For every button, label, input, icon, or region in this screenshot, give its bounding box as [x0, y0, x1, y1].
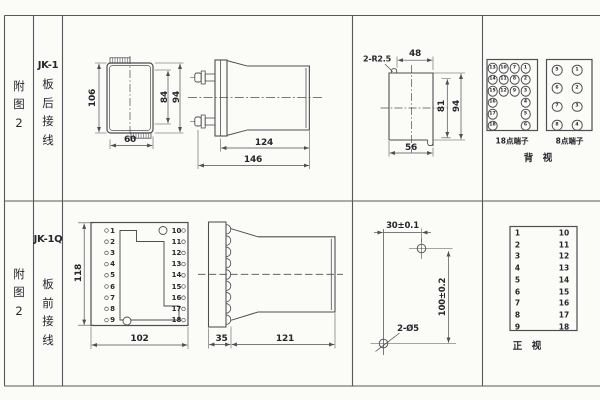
terminal-18pt: 9 — [509, 86, 520, 97]
wiring-char: 板 — [42, 275, 54, 293]
wiring-char: 接 — [42, 112, 54, 130]
terminal-18pt: 10 — [498, 63, 509, 74]
terminal-8pt: 1 — [572, 65, 583, 76]
table-cell-left: 9 — [515, 322, 520, 331]
fig-char: 附 — [13, 77, 25, 95]
wiring-char: 线 — [42, 331, 54, 349]
label-front-view: 正 视 — [513, 338, 542, 352]
terminal-18pt: 14 — [487, 74, 498, 85]
terminal-8pt: 4 — [572, 120, 583, 131]
terminal-18pt: 1 — [520, 63, 531, 74]
fig-char: 图 — [13, 95, 25, 113]
terminal-18pt: 15 — [487, 86, 498, 97]
terminal-18pt: 7 — [509, 63, 520, 74]
table-cell-left: 5 — [515, 275, 520, 284]
wiring-char: 后 — [42, 94, 54, 112]
terminal-18pt: 13 — [487, 63, 498, 74]
front-terminal-left: 1 — [110, 227, 115, 235]
drawing-sheet: 附 图 2 JK-1 板 后 接 线 附 图 2 JK-1Q 板 前 接 线 1… — [0, 0, 600, 400]
front-terminal-left: 3 — [110, 249, 115, 257]
case-side-view — [188, 60, 323, 169]
front-terminal-right: 15 — [172, 283, 182, 291]
table-cell-left: 2 — [515, 240, 520, 249]
front-terminal-right: 14 — [172, 271, 182, 279]
label-18pt-terminal: 18点端子 — [496, 136, 529, 147]
table-cell-left: 8 — [515, 310, 520, 319]
dim-118: 118 — [74, 264, 84, 282]
dim-60: 60 — [124, 135, 136, 145]
model-name: JK-1Q — [34, 231, 63, 249]
dim-106: 106 — [88, 89, 98, 107]
table-cell-left: 3 — [515, 252, 520, 261]
front-terminal-right: 17 — [172, 305, 182, 313]
drawing-linework — [0, 0, 600, 400]
table-cell-right: 13 — [559, 264, 569, 273]
wiring-char: 接 — [42, 312, 54, 330]
table-cell-right: 11 — [559, 240, 569, 249]
terminal-8pt: 6 — [552, 83, 563, 94]
dim-94-cutout: 94 — [452, 100, 462, 112]
wiring-char: 前 — [42, 294, 54, 312]
model-label-top: JK-1 板 后 接 线 — [35, 57, 61, 149]
wiring-char: 板 — [42, 75, 54, 93]
terminal-18pt: 18 — [487, 120, 498, 131]
front-terminal-left: 6 — [110, 283, 115, 291]
terminal-8pt: 2 — [572, 83, 583, 94]
label-8pt-terminal: 8点端子 — [556, 136, 584, 147]
fig-label-top: 附 图 2 — [8, 77, 30, 132]
table-cell-left: 1 — [515, 229, 520, 238]
terminal-18pt: 8 — [509, 74, 520, 85]
terminal-8pt: 5 — [552, 65, 563, 76]
fig-char: 2 — [15, 302, 22, 320]
front-terminal-left: 8 — [110, 305, 115, 313]
dim-56: 56 — [405, 143, 417, 153]
front-terminal-right: 11 — [172, 238, 182, 246]
terminal-18pt: 11 — [498, 74, 509, 85]
table-cell-right: 12 — [559, 252, 569, 261]
front-terminal-right: 16 — [172, 294, 182, 302]
wiring-char: 线 — [42, 131, 54, 149]
front-terminal-right: 12 — [172, 249, 182, 257]
front-terminal-right: 18 — [172, 316, 182, 324]
dim-100: 100±0.2 — [438, 277, 448, 316]
dim-146: 146 — [244, 155, 262, 165]
terminal-18pt: 2 — [520, 74, 531, 85]
terminal-8pt: 3 — [572, 101, 583, 112]
table-cell-right: 14 — [559, 275, 569, 284]
terminal-8pt: 7 — [552, 101, 563, 112]
fig-char: 2 — [15, 114, 22, 132]
case-front-view — [95, 56, 184, 149]
table-cell-right: 10 — [559, 229, 569, 238]
dim-holes-label: 2-Ø5 — [397, 324, 419, 334]
fig-char: 图 — [13, 283, 25, 301]
terminal-18pt: 4 — [520, 97, 531, 108]
dim-81: 81 — [437, 100, 447, 112]
table-cell-left: 7 — [515, 299, 520, 308]
terminal-18pt: 6 — [520, 120, 531, 131]
fig-label-bottom: 附 图 2 — [8, 265, 30, 320]
table-cell-right: 16 — [559, 299, 569, 308]
terminal-18pt: 3 — [520, 86, 531, 97]
front-terminal-left: 5 — [110, 271, 115, 279]
terminal-18pt: 17 — [487, 109, 498, 120]
table-cell-left: 6 — [515, 287, 520, 296]
dim-35: 35 — [215, 334, 227, 344]
dim-84: 84 — [160, 91, 170, 103]
table-cell-left: 4 — [515, 264, 520, 273]
front-terminal-right: 10 — [172, 227, 182, 235]
board-side-view — [198, 222, 343, 349]
dim-124: 124 — [255, 138, 273, 148]
dim-30: 30±0.1 — [386, 221, 419, 231]
dim-94-case: 94 — [172, 91, 182, 103]
model-label-bottom: JK-1Q 板 前 接 线 — [35, 231, 61, 349]
table-cell-right: 17 — [559, 310, 569, 319]
terminal-18pt: 16 — [487, 97, 498, 108]
front-terminal-left: 9 — [110, 316, 115, 324]
model-name: JK-1 — [38, 57, 59, 75]
front-terminal-left: 4 — [110, 260, 115, 268]
fig-char: 附 — [13, 265, 25, 283]
table-cell-right: 15 — [559, 287, 569, 296]
front-terminal-right: 13 — [172, 260, 182, 268]
table-cell-right: 18 — [559, 322, 569, 331]
terminal-18pt: 12 — [498, 86, 509, 97]
dim-102: 102 — [130, 334, 148, 344]
label-rear-view: 背 视 — [524, 150, 553, 164]
front-terminal-left: 7 — [110, 294, 115, 302]
terminal-8pt: 8 — [552, 120, 563, 131]
dim-121: 121 — [276, 334, 294, 344]
front-terminal-left: 2 — [110, 238, 115, 246]
terminal-18pt: 5 — [520, 109, 531, 120]
dim-radius-label: 2-R2.5 — [363, 54, 391, 63]
dim-48: 48 — [409, 49, 421, 59]
